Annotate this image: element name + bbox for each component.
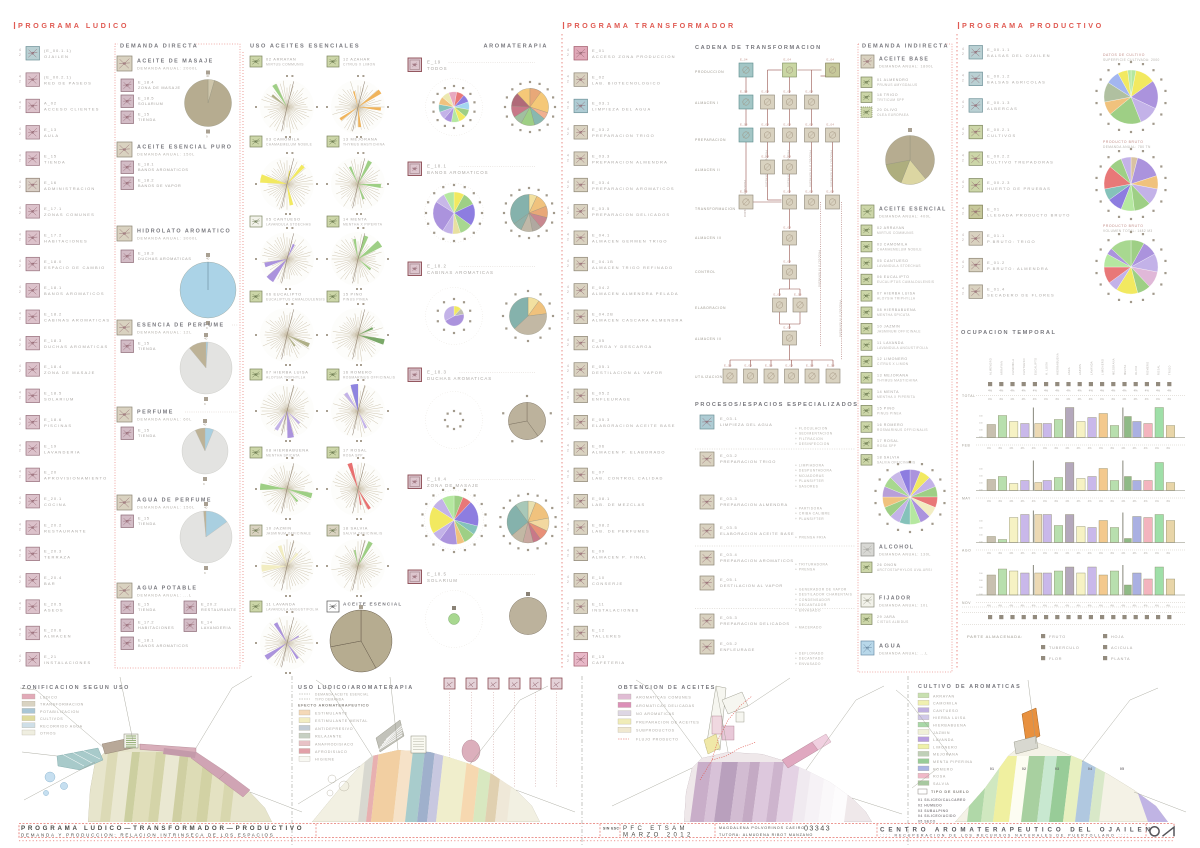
svg-text:LUDICO: LUDICO <box>40 696 58 700</box>
svg-text:DESTILACION AL VAPOR: DESTILACION AL VAPOR <box>592 370 663 375</box>
svg-text:LAB. DE MEZCLAS: LAB. DE MEZCLAS <box>592 502 645 507</box>
svg-text:E_08.2: E_08.2 <box>592 522 610 527</box>
svg-text:4: 4 <box>567 101 569 105</box>
svg-text:PLANTA: PLANTA <box>1111 657 1130 661</box>
svg-text:4: 4 <box>567 601 569 605</box>
svg-text:E_04: E_04 <box>740 190 748 194</box>
svg-text:COCINA: COCINA <box>44 502 67 507</box>
svg-text:4: 4 <box>19 153 21 157</box>
svg-text:DEMANDA ANUAL: 130L: DEMANDA ANUAL: 130L <box>879 553 931 557</box>
svg-text:JAZMIN: JAZMIN <box>933 731 950 735</box>
svg-text:2: 2 <box>567 106 569 110</box>
svg-text:E_00.2.2: E_00.2.2 <box>987 153 1010 158</box>
svg-text:E_04: E_04 <box>740 58 748 62</box>
svg-text:E_04: E_04 <box>762 155 770 159</box>
svg-text:2: 2 <box>19 422 21 426</box>
svg-text:2: 2 <box>19 659 21 663</box>
svg-text:+ CRIBA CALIBRE: + CRIBA CALIBRE <box>795 512 831 516</box>
svg-text:4: 4 <box>567 496 569 500</box>
svg-text:AFRODISIACO: AFRODISIACO <box>315 750 347 754</box>
svg-text:4%: 4% <box>1010 389 1015 393</box>
svg-text:07 HIERBA LUISA: 07 HIERBA LUISA <box>266 370 309 375</box>
svg-text:TRITICUM SPP: TRITICUM SPP <box>877 98 904 102</box>
svg-text:CITRUS X LIMON: CITRUS X LIMON <box>877 362 909 366</box>
svg-text:E_04: E_04 <box>784 260 792 264</box>
svg-text:E_04: E_04 <box>784 155 792 159</box>
svg-text:E_15: E_15 <box>138 113 150 117</box>
svg-text:CULTIVOS: CULTIVOS <box>987 133 1016 138</box>
svg-text:E_15: E_15 <box>138 429 150 433</box>
svg-text:+ LIMPIADORA: + LIMPIADORA <box>795 464 824 468</box>
svg-text:PRUNUS AMYGDALUS: PRUNUS AMYGDALUS <box>877 83 918 87</box>
svg-text:AGUA DE PERFUME: AGUA DE PERFUME <box>137 498 212 504</box>
svg-text:2: 2 <box>19 132 21 136</box>
svg-text:E_04: E_04 <box>827 123 835 127</box>
svg-text:2: 2 <box>567 317 569 321</box>
svg-text:BANOS DE VAPOR: BANOS DE VAPOR <box>138 184 182 188</box>
svg-text:4%: 4% <box>1044 389 1049 393</box>
svg-text:TIPO DE SUELO: TIPO DE SUELO <box>931 790 969 794</box>
svg-text:4: 4 <box>19 285 21 289</box>
svg-text:E_02: E_02 <box>592 74 605 79</box>
svg-text:TRANSFORMACION: TRANSFORMACION <box>40 703 84 707</box>
svg-text:DEMANDA ANUAL: 2000L: DEMANDA ANUAL: 2000L <box>137 67 198 71</box>
svg-text:+ DESINFECCION: + DESINFECCION <box>795 442 830 446</box>
svg-text:E_03.2: E_03.2 <box>592 127 610 132</box>
svg-text:E_20: E_20 <box>44 470 57 475</box>
svg-text:JARA: JARA <box>1067 367 1071 375</box>
svg-text:EUCALIPTUS CAMALDULENSIS: EUCALIPTUS CAMALDULENSIS <box>877 280 934 284</box>
svg-text:E_07: E_07 <box>592 470 605 475</box>
svg-text:2: 2 <box>567 79 569 83</box>
svg-text:+ PARTIDORA: + PARTIDORA <box>795 507 823 511</box>
svg-text:UTILIZACION: UTILIZACION <box>695 375 723 379</box>
svg-text:4: 4 <box>962 127 964 131</box>
svg-text:PROGRAMA LUDICO: PROGRAMA LUDICO <box>18 21 129 30</box>
svg-text:INSTALACIONES: INSTALACIONES <box>592 607 639 612</box>
svg-text:LAVANDA: LAVANDA <box>933 738 954 742</box>
svg-text:DEMANDA ANUAL: 10L: DEMANDA ANUAL: 10L <box>879 604 928 608</box>
svg-text:NO AROMATICAS: NO AROMATICAS <box>636 712 675 716</box>
svg-text:4: 4 <box>962 260 964 264</box>
svg-text:E_20.3: E_20.3 <box>44 549 62 554</box>
svg-text:2: 2 <box>19 290 21 294</box>
svg-text:4: 4 <box>19 259 21 263</box>
svg-text:+ DEFLORADO: + DEFLORADO <box>795 652 824 656</box>
svg-text:11 LAVANDA: 11 LAVANDA <box>877 341 904 345</box>
svg-text:E_04: E_04 <box>784 58 792 62</box>
svg-text:ELABORACION: ELABORACION <box>695 306 726 310</box>
svg-text:14 MENTA: 14 MENTA <box>343 217 367 222</box>
svg-text:E_15: E_15 <box>138 342 150 346</box>
svg-text:TODOS: TODOS <box>427 66 448 71</box>
svg-text:MEJORANA: MEJORANA <box>933 753 959 757</box>
svg-text:E_05.3: E_05.3 <box>592 417 610 422</box>
svg-text:4: 4 <box>19 127 21 131</box>
svg-text:E_04.1B: E_04.1B <box>592 259 614 264</box>
svg-text:E_10: E_10 <box>592 575 605 580</box>
svg-text:RECORRIDO AGUA: RECORRIDO AGUA <box>40 724 83 728</box>
svg-text:+ ENVASADO: + ENVASADO <box>795 608 821 612</box>
svg-text:THYMUS MASTICHINA: THYMUS MASTICHINA <box>343 143 385 147</box>
svg-text:E_06: E_06 <box>592 443 605 448</box>
svg-text:ALMACEN III: ALMACEN III <box>695 337 722 341</box>
svg-text:PRODUCTO INTERMEDIO: PRODUCTO INTERMEDIO <box>809 150 813 188</box>
svg-text:E_20.4: E_20.4 <box>44 575 62 580</box>
svg-text:LAVANDA: LAVANDA <box>1089 361 1093 375</box>
svg-text:E_05.1: E_05.1 <box>720 577 737 582</box>
svg-text:ROSMARINUS OFFICINALIS: ROSMARINUS OFFICINALIS <box>343 376 396 380</box>
svg-text:E_04: E_04 <box>784 226 792 230</box>
svg-text:2: 2 <box>962 105 964 109</box>
svg-text:E_04: E_04 <box>745 364 753 368</box>
svg-text:4: 4 <box>962 233 964 237</box>
svg-text:4%: 4% <box>1055 389 1060 393</box>
svg-text:OLIVO: OLIVO <box>1134 366 1138 375</box>
svg-text:LIMONERO: LIMONERO <box>933 745 958 749</box>
svg-text:+ CONDENSADOR: + CONDENSADOR <box>795 598 830 602</box>
svg-text:29 JARA: 29 JARA <box>877 615 895 619</box>
svg-text:E_00.2.3: E_00.2.3 <box>987 180 1010 185</box>
svg-text:+ FLOCULACION: + FLOCULACION <box>795 427 828 431</box>
svg-text:E_12: E_12 <box>592 628 605 633</box>
svg-text:2: 2 <box>19 53 21 57</box>
svg-text:SECADERO DE FLORES: SECADERO DE FLORES <box>987 292 1055 297</box>
svg-text:16 ROMERO: 16 ROMERO <box>343 370 372 375</box>
svg-text:03: 03 <box>1055 767 1059 771</box>
svg-text:JASMINUM OFFICINALE: JASMINUM OFFICINALE <box>877 329 921 333</box>
svg-text:13 MEJORANA: 13 MEJORANA <box>877 374 909 378</box>
svg-text:2: 2 <box>567 527 569 531</box>
svg-text:TERRAZA: TERRAZA <box>44 555 71 560</box>
svg-text:HIERBABUENA: HIERBABUENA <box>1056 353 1060 375</box>
svg-text:ALMACEN I: ALMACEN I <box>695 101 719 105</box>
svg-text:4: 4 <box>962 286 964 290</box>
svg-text:MENTHA X PIPERITA: MENTHA X PIPERITA <box>877 395 916 399</box>
svg-text:20 OLIVO: 20 OLIVO <box>877 108 898 112</box>
svg-text:E_01: E_01 <box>592 48 605 53</box>
svg-text:CULTIVOS: CULTIVOS <box>40 717 63 721</box>
svg-text:E_04: E_04 <box>784 90 792 94</box>
svg-text:BAR: BAR <box>44 581 56 586</box>
svg-text:08 HIERBABUENA: 08 HIERBABUENA <box>266 448 309 453</box>
svg-text:4: 4 <box>19 628 21 632</box>
svg-text:E_19: E_19 <box>44 443 57 448</box>
svg-text:4: 4 <box>567 259 569 263</box>
svg-text:2: 2 <box>962 291 964 295</box>
svg-text:18 SALVIA: 18 SALVIA <box>877 456 900 460</box>
svg-text:4: 4 <box>19 74 21 78</box>
svg-text:ASEOS: ASEOS <box>44 607 64 612</box>
svg-text:FLOR: FLOR <box>1049 657 1062 661</box>
svg-text:LAVANDULA ANGUSTIFOLIA: LAVANDULA ANGUSTIFOLIA <box>266 608 319 612</box>
svg-text:PROCESOS/ESPACIOS ESPECIALIZAD: PROCESOS/ESPACIOS ESPECIALIZADOS <box>695 402 859 408</box>
svg-text:2: 2 <box>19 475 21 479</box>
svg-text:DEMANDA ANUAL: ...L: DEMANDA ANUAL: ...L <box>879 652 928 656</box>
svg-text:12 LIMONERO: 12 LIMONERO <box>877 357 908 361</box>
svg-text:+ MOJADORAS: + MOJADORAS <box>795 474 825 478</box>
svg-text:ESTIMULANTE: ESTIMULANTE <box>315 712 348 716</box>
svg-text:+ PLANSIFTER: + PLANSIFTER <box>795 479 824 483</box>
svg-text:40: 40 <box>204 506 208 510</box>
svg-text:4: 4 <box>962 74 964 78</box>
svg-text:4: 4 <box>567 549 569 553</box>
svg-text:E_18.3: E_18.3 <box>427 370 447 375</box>
svg-text:CARGA Y DESCARGA: CARGA Y DESCARGA <box>592 344 652 349</box>
svg-text:HIERBABUENA: HIERBABUENA <box>933 724 966 728</box>
svg-text:+ DECANTADOR: + DECANTADOR <box>795 603 827 607</box>
svg-text:+ MACERADO: + MACERADO <box>795 626 822 630</box>
svg-text:CANTUESO: CANTUESO <box>1022 358 1026 375</box>
svg-text:PRODUCCION: PRODUCCION <box>695 70 724 74</box>
svg-text:ROSMARINUS OFFICINALIS: ROSMARINUS OFFICINALIS <box>877 428 928 432</box>
svg-text:ADMINISTRACION: ADMINISTRACION <box>44 186 95 191</box>
svg-text:E_04: E_04 <box>784 326 792 330</box>
svg-text:CABINAS AROMATICAS: CABINAS AROMATICAS <box>44 318 110 323</box>
svg-text:ACEITE BASE: ACEITE BASE <box>879 57 929 63</box>
svg-text:PINUS PINEA: PINUS PINEA <box>343 298 369 302</box>
svg-text:2: 2 <box>567 132 569 136</box>
svg-text:4: 4 <box>567 443 569 447</box>
svg-text:2: 2 <box>19 448 21 452</box>
svg-text:CAFETERIA: CAFETERIA <box>592 660 625 665</box>
svg-text:ARCTOSTAPHYLOS UVA-URSI: ARCTOSTAPHYLOS UVA-URSI <box>877 568 932 572</box>
svg-text:TUTORA: ALMUDENA RIBOT MANZANO: TUTORA: ALMUDENA RIBOT MANZANO <box>719 833 813 837</box>
svg-text:E_03.5: E_03.5 <box>592 206 610 211</box>
svg-text:ACICULA: ACICULA <box>1111 646 1133 650</box>
svg-text:TALLERES: TALLERES <box>592 634 622 639</box>
svg-text:ALMACEN CASCARA ALMENDRA: ALMACEN CASCARA ALMENDRA <box>592 318 683 323</box>
svg-text:P.BRUTO: TRIGO: P.BRUTO: TRIGO <box>987 239 1036 244</box>
svg-text:P.BRUTO: ALMENDRA: P.BRUTO: ALMENDRA <box>987 266 1049 271</box>
svg-text:+ DESPUNTADORA: + DESPUNTADORA <box>795 469 832 473</box>
svg-text:2: 2 <box>567 475 569 479</box>
svg-text:05: 05 <box>1120 767 1124 771</box>
svg-text:03 CAMOMILA: 03 CAMOMILA <box>266 137 300 142</box>
svg-text:TIENDA: TIENDA <box>138 347 156 351</box>
svg-text:+ PRENSA: + PRENSA <box>795 568 816 572</box>
svg-text:TUBERCULO: TUBERCULO <box>1049 646 1080 650</box>
svg-text:+ PRENSA FRIA: + PRENSA FRIA <box>795 536 826 540</box>
svg-text:4: 4 <box>567 206 569 210</box>
svg-text:2: 2 <box>19 580 21 584</box>
svg-text:MIRTUS COMMUNIS: MIRTUS COMMUNIS <box>266 63 304 67</box>
svg-text:MENTHA X PIPERITA: MENTHA X PIPERITA <box>343 223 383 227</box>
svg-text:03343: 03343 <box>804 823 831 832</box>
svg-text:E_01: E_01 <box>987 207 1000 212</box>
svg-text:ALCOHOL: ALCOHOL <box>879 545 914 551</box>
svg-text:E_18.1: E_18.1 <box>138 639 154 643</box>
svg-text:2: 2 <box>19 106 21 110</box>
svg-text:OJAILEN: OJAILEN <box>44 54 69 59</box>
svg-text:DUCHAS AROMATICAS: DUCHAS AROMATICAS <box>138 257 192 261</box>
svg-text:4: 4 <box>567 575 569 579</box>
svg-text:CHAMAEMELUM NOBILE: CHAMAEMELUM NOBILE <box>266 143 313 147</box>
svg-text:OBTENCION DE ACEITES: OBTENCION DE ACEITES <box>618 685 716 691</box>
svg-text:10 JAZMIN: 10 JAZMIN <box>266 526 292 531</box>
svg-text:06 EUCALIPTO: 06 EUCALIPTO <box>877 275 910 279</box>
svg-text:2: 2 <box>19 79 21 83</box>
svg-text:LIMPIEZA DEL AGUA: LIMPIEZA DEL AGUA <box>592 107 651 112</box>
svg-text:E_15: E_15 <box>44 153 57 158</box>
svg-text:4: 4 <box>19 522 21 526</box>
svg-text:4: 4 <box>567 628 569 632</box>
svg-text:2: 2 <box>19 527 21 531</box>
svg-text:E_00.1.1: E_00.1.1 <box>987 47 1010 52</box>
svg-text:E_17.1: E_17.1 <box>44 206 62 211</box>
svg-text:E_01.4: E_01.4 <box>987 286 1005 291</box>
svg-text:E_17.2: E_17.2 <box>138 621 154 625</box>
svg-text:ALMACEN ALMENDRA PELADA: ALMACEN ALMENDRA PELADA <box>592 291 679 296</box>
svg-text:BALSAS AGRICOLAS: BALSAS AGRICOLAS <box>987 80 1046 85</box>
svg-text:SALVIA: SALVIA <box>933 782 950 786</box>
svg-text:+ SASORES: + SASORES <box>795 484 819 488</box>
svg-text:PREPARACION ALMENDRA: PREPARACION ALMENDRA <box>592 159 668 164</box>
svg-text:PRODUCTO INTERMEDIO: PRODUCTO INTERMEDIO <box>839 300 843 338</box>
svg-text:4%: 4% <box>1089 389 1094 393</box>
svg-text:PREPARACION DELICADOS: PREPARACION DELICADOS <box>720 621 790 626</box>
svg-text:CULTIVO TREPADORAS: CULTIVO TREPADORAS <box>987 159 1054 164</box>
svg-text:(E_00.2.1): (E_00.2.1) <box>44 74 72 79</box>
svg-text:4: 4 <box>567 391 569 395</box>
svg-text:2: 2 <box>567 501 569 505</box>
svg-text:RESTAURANTE: RESTAURANTE <box>44 528 87 533</box>
svg-text:E_04: E_04 <box>794 293 802 297</box>
svg-text:ZONA DE MASAJE: ZONA DE MASAJE <box>44 370 95 375</box>
svg-text:ACEITE ESENCIAL PURO: ACEITE ESENCIAL PURO <box>137 145 233 151</box>
svg-text:DEMANDA ANUAL: 780 TN: DEMANDA ANUAL: 780 TN <box>1103 145 1151 149</box>
svg-text:DEMANDA Y PRODUCCION: RELACION: DEMANDA Y PRODUCCION: RELACION INTRINSEC… <box>21 832 275 837</box>
svg-text:2: 2 <box>19 396 21 400</box>
svg-text:E_18.1: E_18.1 <box>44 285 62 290</box>
svg-text:E_15: E_15 <box>138 603 150 607</box>
svg-text:05 CANTUESO: 05 CANTUESO <box>266 217 301 222</box>
svg-text:E_03.2: E_03.2 <box>720 453 737 458</box>
svg-text:MAGDALENA POLVORINOS CAEIRO: MAGDALENA POLVORINOS CAEIRO <box>719 826 805 830</box>
svg-text:CITRUS X LIMON: CITRUS X LIMON <box>343 63 376 67</box>
svg-text:4: 4 <box>19 48 21 52</box>
svg-text:E_13: E_13 <box>592 654 605 659</box>
svg-text:RED DE PASEOS: RED DE PASEOS <box>44 80 92 85</box>
svg-text:E_18.3: E_18.3 <box>138 252 154 256</box>
svg-text:4%: 4% <box>1122 389 1127 393</box>
svg-text:LAB. BIOTECNOLOGICO: LAB. BIOTECNOLOGICO <box>592 80 661 85</box>
svg-text:E_05.1: E_05.1 <box>592 364 610 369</box>
svg-text:2: 2 <box>962 79 964 83</box>
svg-text:E_20.5: E_20.5 <box>44 601 62 606</box>
svg-text:PRODUCTO INTERMEDIO: PRODUCTO INTERMEDIO <box>818 250 822 288</box>
svg-text:E_18.5: E_18.5 <box>138 97 154 101</box>
svg-text:E_04: E_04 <box>740 90 748 94</box>
svg-text:NOV: NOV <box>962 601 971 605</box>
svg-text:DATOS DE CULTIVO: DATOS DE CULTIVO <box>1103 53 1145 57</box>
svg-text:E_18.3: E_18.3 <box>44 338 62 343</box>
svg-text:40: 40 <box>206 74 210 78</box>
svg-text:E_18.4: E_18.4 <box>427 477 447 482</box>
svg-text:LAB. DE PERFUMES: LAB. DE PERFUMES <box>592 528 650 533</box>
svg-text:2: 2 <box>567 158 569 162</box>
svg-text:E_08.1: E_08.1 <box>592 496 610 501</box>
svg-text:2: 2 <box>567 606 569 610</box>
svg-text:MIRTUS COMMUNIS: MIRTUS COMMUNIS <box>877 231 914 235</box>
svg-text:4%: 4% <box>1134 389 1139 393</box>
svg-text:E_15: E_15 <box>138 517 150 521</box>
svg-text:CANTUESO: CANTUESO <box>933 709 959 713</box>
svg-text:+ FILTRACION: + FILTRACION <box>795 437 823 441</box>
svg-text:ENFLEURAGE: ENFLEURAGE <box>592 397 631 402</box>
svg-text:04 SILICEO/ACIDO: 04 SILICEO/ACIDO <box>918 814 956 818</box>
svg-text:E_00.2.1: E_00.2.1 <box>987 127 1010 132</box>
svg-text:07 HIERBA LUISA: 07 HIERBA LUISA <box>877 292 916 296</box>
svg-text:CHAMAEMELUM NOBILE: CHAMAEMELUM NOBILE <box>877 247 922 251</box>
svg-text:OTROS: OTROS <box>40 732 56 736</box>
svg-text:AGO: AGO <box>962 549 971 553</box>
svg-text:4%: 4% <box>1022 389 1027 393</box>
svg-text:RESTAURANTE: RESTAURANTE <box>201 608 237 612</box>
svg-text:18 SALVIA: 18 SALVIA <box>343 526 368 531</box>
svg-text:+ TRITURADORA: + TRITURADORA <box>795 563 828 567</box>
svg-text:CADENA DE TRANSFORMACION: CADENA DE TRANSFORMACION <box>695 45 822 51</box>
svg-text:PISCINAS: PISCINAS <box>44 423 72 428</box>
svg-text:2: 2 <box>567 185 569 189</box>
svg-text:E_14: E_14 <box>201 621 213 625</box>
svg-text:E_01.2: E_01.2 <box>987 260 1005 265</box>
svg-text:AROMATICAS DELICADAS: AROMATICAS DELICADAS <box>636 704 695 708</box>
svg-text:4%: 4% <box>1033 389 1038 393</box>
svg-text:4%: 4% <box>1066 389 1071 393</box>
svg-text:4: 4 <box>19 470 21 474</box>
svg-text:4: 4 <box>962 207 964 211</box>
svg-text:E_11: E_11 <box>592 601 605 606</box>
svg-text:MAY: MAY <box>962 497 971 501</box>
svg-text:4%: 4% <box>1145 389 1150 393</box>
svg-text:JAZMIN: JAZMIN <box>1078 364 1082 375</box>
svg-text:2: 2 <box>567 422 569 426</box>
svg-text:APROVISIONAMIENTO: APROVISIONAMIENTO <box>44 476 107 481</box>
svg-text:LAVANDERIA: LAVANDERIA <box>44 449 81 454</box>
svg-text:40: 40 <box>206 257 210 261</box>
svg-text:40: 40 <box>204 337 208 341</box>
svg-text:2: 2 <box>962 185 964 189</box>
svg-text:A_02: A_02 <box>44 101 57 106</box>
svg-text:DEMANDA INDIRECTA: DEMANDA INDIRECTA <box>862 44 949 50</box>
svg-text:2: 2 <box>567 369 569 373</box>
svg-text:4%: 4% <box>1078 389 1083 393</box>
svg-text:E_03.3: E_03.3 <box>720 496 737 501</box>
svg-text:JASMINUM OFFICINALE: JASMINUM OFFICINALE <box>266 532 312 536</box>
svg-text:2: 2 <box>19 264 21 268</box>
svg-text:E_17.2: E_17.2 <box>44 232 62 237</box>
svg-text:PINUS PINEA: PINUS PINEA <box>877 411 902 415</box>
svg-text:CAMOMILA: CAMOMILA <box>933 702 958 706</box>
svg-text:E_18.5: E_18.5 <box>427 572 447 577</box>
svg-text:4: 4 <box>19 312 21 316</box>
svg-text:PREPARACION: PREPARACION <box>695 138 726 142</box>
svg-text:E_04: E_04 <box>762 123 770 127</box>
svg-text:E_04: E_04 <box>827 58 835 62</box>
svg-text:2: 2 <box>567 237 569 241</box>
svg-text:2: 2 <box>962 238 964 242</box>
svg-text:4: 4 <box>19 443 21 447</box>
svg-text:2: 2 <box>19 343 21 347</box>
svg-text:ZONAS COMUNES: ZONAS COMUNES <box>44 212 95 217</box>
svg-text:4: 4 <box>567 127 569 131</box>
svg-text:MENTA: MENTA <box>1123 365 1127 375</box>
svg-text:TIENDA: TIENDA <box>138 522 156 526</box>
svg-text:10 JAZMIN: 10 JAZMIN <box>877 324 900 328</box>
svg-text:4: 4 <box>567 654 569 658</box>
svg-text:E_21: E_21 <box>44 654 57 659</box>
